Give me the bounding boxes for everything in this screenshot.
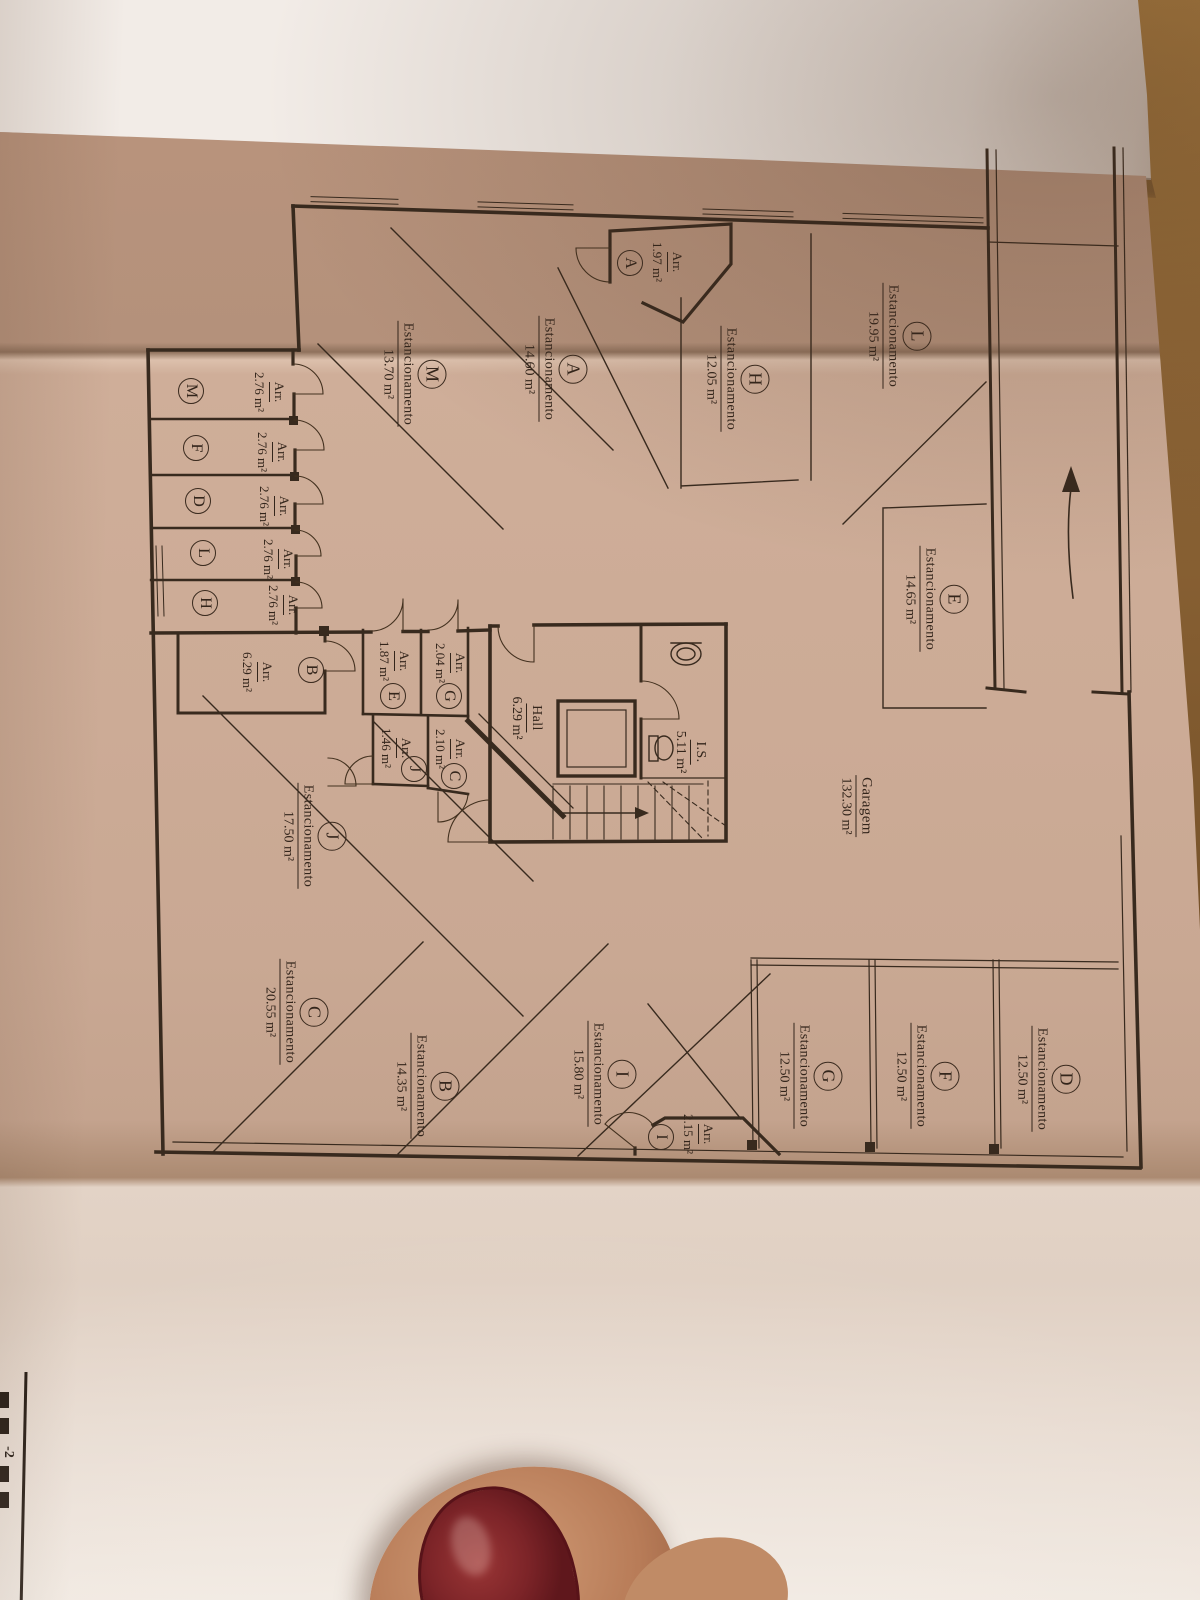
space-letter-badge: L: [903, 321, 932, 350]
photo-of-floor-plan: LEstancionamento19.95 m² HEstancionament…: [0, 0, 1200, 1600]
storage-letter-badge-e: E: [380, 683, 406, 709]
storage-label-h: Arr.2.76 m²: [265, 585, 301, 625]
space-letter-badge: G: [814, 1061, 843, 1090]
parking-label-f: FEstancionamento12.50 m²: [893, 1023, 960, 1129]
parking-label-m: MEstancionamento13.70 m²: [380, 321, 447, 427]
drawing-number-fragment: -2: [0, 1446, 16, 1458]
floor-name: CAVE: [0, 495, 8, 631]
storage-label-e: Arr.1.87 m²: [376, 641, 412, 681]
parking-label-i: IEstancionamento15.80 m²: [570, 1021, 637, 1127]
storage-label-f: Arr.2.76 m²: [254, 432, 290, 472]
parking-label-j: JEstancionamento17.50 m²: [280, 783, 347, 889]
storage-label-b: Arr.6.29 m²: [239, 652, 275, 692]
stairs-direction-arrow-icon: [635, 807, 649, 819]
ramp-walls: [987, 148, 1131, 694]
parking-label-d: DEstancionamento12.50 m²: [1014, 1026, 1081, 1132]
hall-label: Hall6.29 m²: [508, 696, 544, 739]
space-letter-badge: E: [940, 584, 969, 613]
floorplan: LEstancionamento19.95 m² HEstancionament…: [143, 136, 1153, 1198]
storage-letter-badge-h: H: [192, 590, 218, 616]
cut-off-text-fragment: [0, 1466, 9, 1482]
elevator-shaft: [558, 701, 635, 776]
storage-label-a: Arr.1.97 m²: [649, 242, 685, 282]
wc-label: I.S.5.11 m²: [672, 731, 708, 774]
storage-label-l: Arr.2.76 m²: [260, 539, 296, 579]
space-letter-badge: D: [1052, 1064, 1081, 1093]
space-letter-badge: A: [559, 354, 588, 383]
parking-label-e: EEstancionamento14.65 m²: [902, 546, 969, 652]
parking-label-h: HEstancionamento12.05 m²: [703, 326, 770, 432]
parking-label-g: GEstancionamento12.50 m²: [776, 1023, 843, 1129]
storage-label-i: Arr.2.15 m²: [680, 1114, 716, 1154]
storage-letter-badge-i: I: [648, 1124, 674, 1150]
door-arcs: [293, 248, 679, 1148]
cut-off-text-fragment: [0, 1492, 9, 1508]
space-letter-badge: J: [318, 821, 347, 850]
storage-letter-badge-j: J: [401, 756, 427, 782]
storage-letter-badge-m: M: [178, 378, 204, 404]
toilet-icon: [649, 736, 673, 761]
storage-label-d: Arr.2.76 m²: [256, 486, 292, 526]
space-letter-badge: B: [431, 1071, 460, 1100]
space-letter-badge: M: [418, 359, 447, 388]
storage-letter-badge-l: L: [190, 540, 216, 566]
storage-letter-badge-d: D: [185, 488, 211, 514]
parking-label-b: BEstancionamento14.35 m²: [393, 1033, 460, 1139]
storage-label-m: Arr.2.76 m²: [251, 372, 287, 412]
ramp-arrow-icon: [1062, 466, 1080, 598]
space-letter-badge: F: [931, 1061, 960, 1090]
storage-letter-badge-a: A: [617, 250, 643, 276]
cut-off-text-fragment: [0, 1392, 9, 1408]
cut-off-text-fragment: [0, 1418, 9, 1434]
storage-label-g: Arr.2.04 m²: [432, 643, 468, 683]
parking-label-a: AEstancionamento14.60 m²: [521, 316, 588, 422]
storage-letter-badge-b: B: [298, 657, 324, 683]
garage-label: Garagem132.30 m²: [838, 775, 875, 837]
space-letter-badge: I: [608, 1059, 637, 1088]
space-letter-badge: C: [300, 997, 329, 1026]
storage-letter-badge-c: C: [441, 763, 467, 789]
parking-label-l: LEstancionamento19.95 m²: [865, 283, 932, 389]
storage-letter-badge-f: F: [183, 435, 209, 461]
parking-label-c: CEstancionamento20.55 m²: [262, 959, 329, 1065]
washbasin-icon: [671, 643, 701, 665]
space-letter-badge: H: [741, 364, 770, 393]
storage-letter-badge-g: G: [436, 683, 462, 709]
